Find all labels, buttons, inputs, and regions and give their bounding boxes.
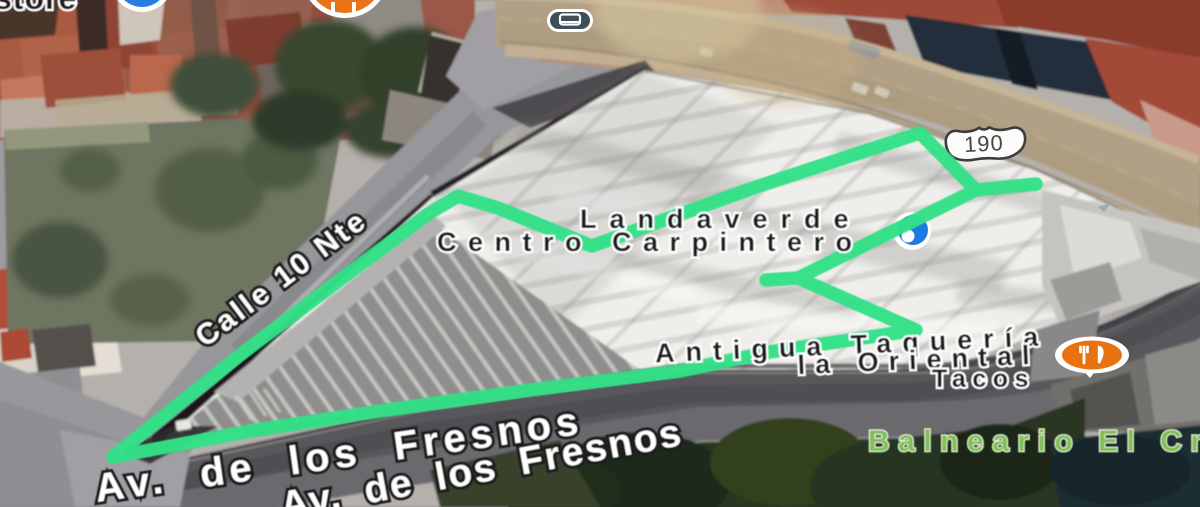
svg-text:190: 190 — [963, 130, 1004, 157]
svg-text:Centro Carpintero: Centro Carpintero — [437, 227, 864, 257]
svg-text:Tacos: Tacos — [932, 365, 1035, 393]
svg-text:Balneario El Cr: Balneario El Cr — [868, 425, 1200, 458]
svg-text:store: store — [0, 0, 77, 16]
